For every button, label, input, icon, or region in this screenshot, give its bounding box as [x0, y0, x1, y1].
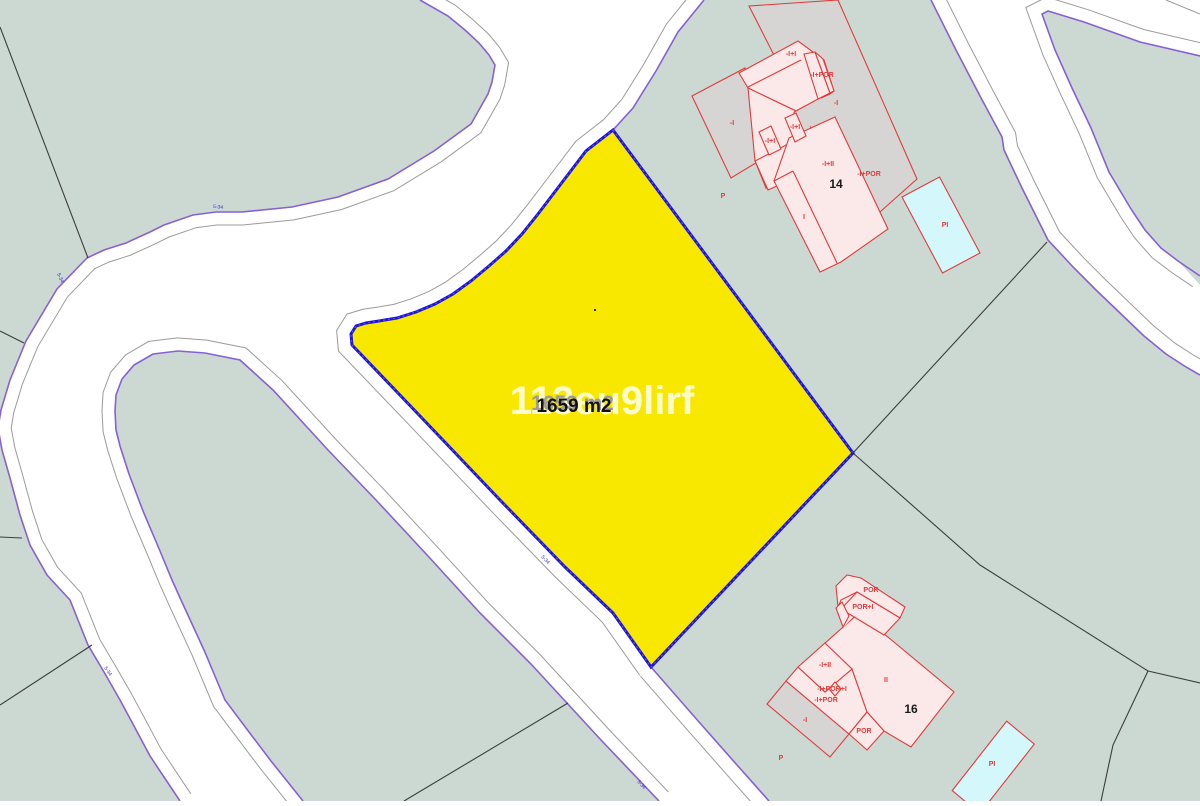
svg-text:-I: -I	[834, 100, 838, 107]
svg-text:-I+I: -I+I	[765, 138, 775, 145]
svg-text:PI: PI	[989, 761, 996, 768]
svg-text:POR: POR	[856, 728, 871, 735]
svg-text:-I+II: -I+II	[819, 662, 831, 669]
svg-text:5-34: 5-34	[213, 204, 224, 211]
svg-text:-I: -I	[803, 717, 807, 724]
svg-text:II: II	[884, 677, 888, 684]
svg-text:-I+II: -I+II	[822, 161, 834, 168]
svg-text:-I+POR+I: -I+POR+I	[817, 686, 847, 693]
svg-text:P: P	[779, 755, 784, 762]
svg-text:P: P	[721, 193, 726, 200]
svg-text:PI: PI	[942, 222, 949, 229]
svg-text:-I+POR: -I+POR	[814, 697, 838, 704]
svg-text:16: 16	[904, 702, 918, 716]
svg-text:-I+POR: -I+POR	[810, 72, 834, 79]
svg-text:-I+POR: -I+POR	[857, 171, 881, 178]
svg-text:1659 m2: 1659 m2	[536, 396, 611, 417]
svg-text:-I+I: -I+I	[786, 51, 796, 58]
svg-text:14: 14	[829, 177, 843, 191]
svg-text:POR: POR	[863, 587, 878, 594]
svg-text:I: I	[803, 214, 805, 221]
svg-text:-I+I: -I+I	[790, 124, 800, 131]
svg-text:-I: -I	[730, 120, 734, 127]
svg-text:POR+I: POR+I	[852, 604, 873, 611]
